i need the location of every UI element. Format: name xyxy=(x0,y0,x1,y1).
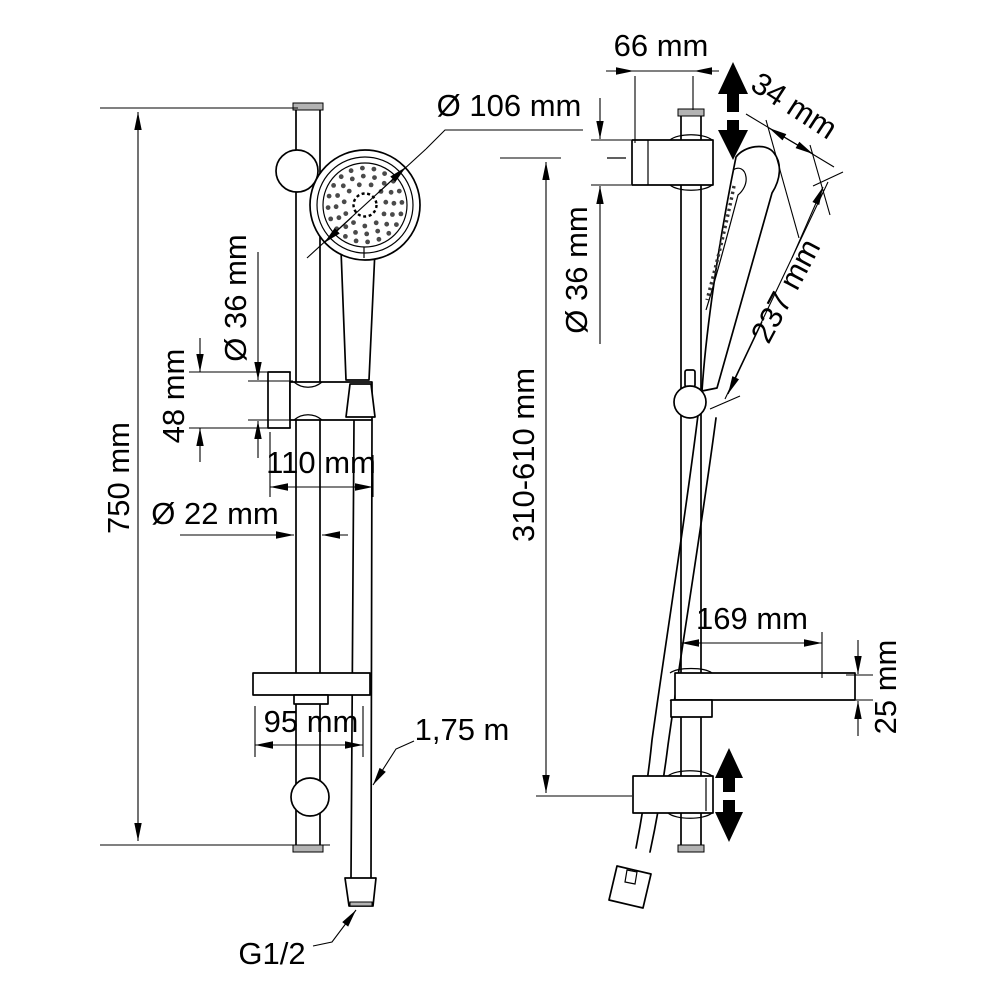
lower-wall-knob xyxy=(291,778,329,816)
dim-dish-depth: 169 mm xyxy=(681,601,822,678)
dim-dish-width-label: 95 mm xyxy=(264,704,359,739)
dim-hose-length: 1,75 m xyxy=(373,712,509,785)
dim-bracket-diameter-label: Ø 36 mm xyxy=(559,206,594,333)
dim-head-width-label: 34 mm xyxy=(745,65,844,146)
dim-holder-offset-label: 110 mm xyxy=(266,445,376,480)
hose-connector-side xyxy=(609,866,651,908)
up-down-arrow-bottom xyxy=(715,748,743,842)
soap-dish-side xyxy=(670,669,855,718)
dim-holder-diameter-label: Ø 36 mm xyxy=(218,234,253,361)
dim-head-diameter-label: Ø 106 mm xyxy=(437,88,582,123)
wall-bracket-side xyxy=(607,135,713,191)
dim-bar-diameter-label: Ø 22 mm xyxy=(151,496,278,531)
dim-adjustable-range-label: 310-610 mm xyxy=(506,368,541,542)
dim-dish-depth-label: 169 mm xyxy=(696,601,808,636)
hose-front xyxy=(345,420,376,906)
dim-total-height-label: 750 mm xyxy=(101,422,136,534)
handle-front xyxy=(341,250,375,380)
dimension-annotations: 750 mm Ø 106 mm Ø 36 mm 48 mm xyxy=(100,28,903,971)
dim-wall-offset: 66 mm xyxy=(606,28,719,143)
technical-drawing: 750 mm Ø 106 mm Ø 36 mm 48 mm xyxy=(0,0,1000,1000)
bar-top-cap xyxy=(293,103,323,110)
hand-shower-front xyxy=(310,150,420,380)
dim-bar-diameter: Ø 22 mm xyxy=(151,496,348,535)
dim-thread-label: G1/2 xyxy=(238,936,305,971)
slide-bar-side xyxy=(678,109,704,852)
dim-thread: G1/2 xyxy=(238,910,356,971)
dim-dish-height-label: 25 mm xyxy=(868,640,903,735)
dim-dish-width: 95 mm xyxy=(255,704,363,757)
slider-block-side xyxy=(633,771,713,819)
dim-hose-length-label: 1,75 m xyxy=(415,712,510,747)
bar-bottom-cap xyxy=(293,845,323,852)
dim-bracket-diameter: Ø 36 mm xyxy=(559,98,631,344)
side-view xyxy=(607,62,855,908)
upper-wall-knob xyxy=(276,150,318,192)
up-down-arrow-top xyxy=(718,62,748,160)
dim-wall-offset-label: 66 mm xyxy=(614,28,709,63)
handle-cone xyxy=(346,384,375,417)
dim-holder-height-label: 48 mm xyxy=(156,349,191,444)
hose-side xyxy=(609,415,716,908)
drawing-canvas: 750 mm Ø 106 mm Ø 36 mm 48 mm xyxy=(0,0,1000,1000)
dim-holder-offset: 110 mm xyxy=(266,432,376,497)
